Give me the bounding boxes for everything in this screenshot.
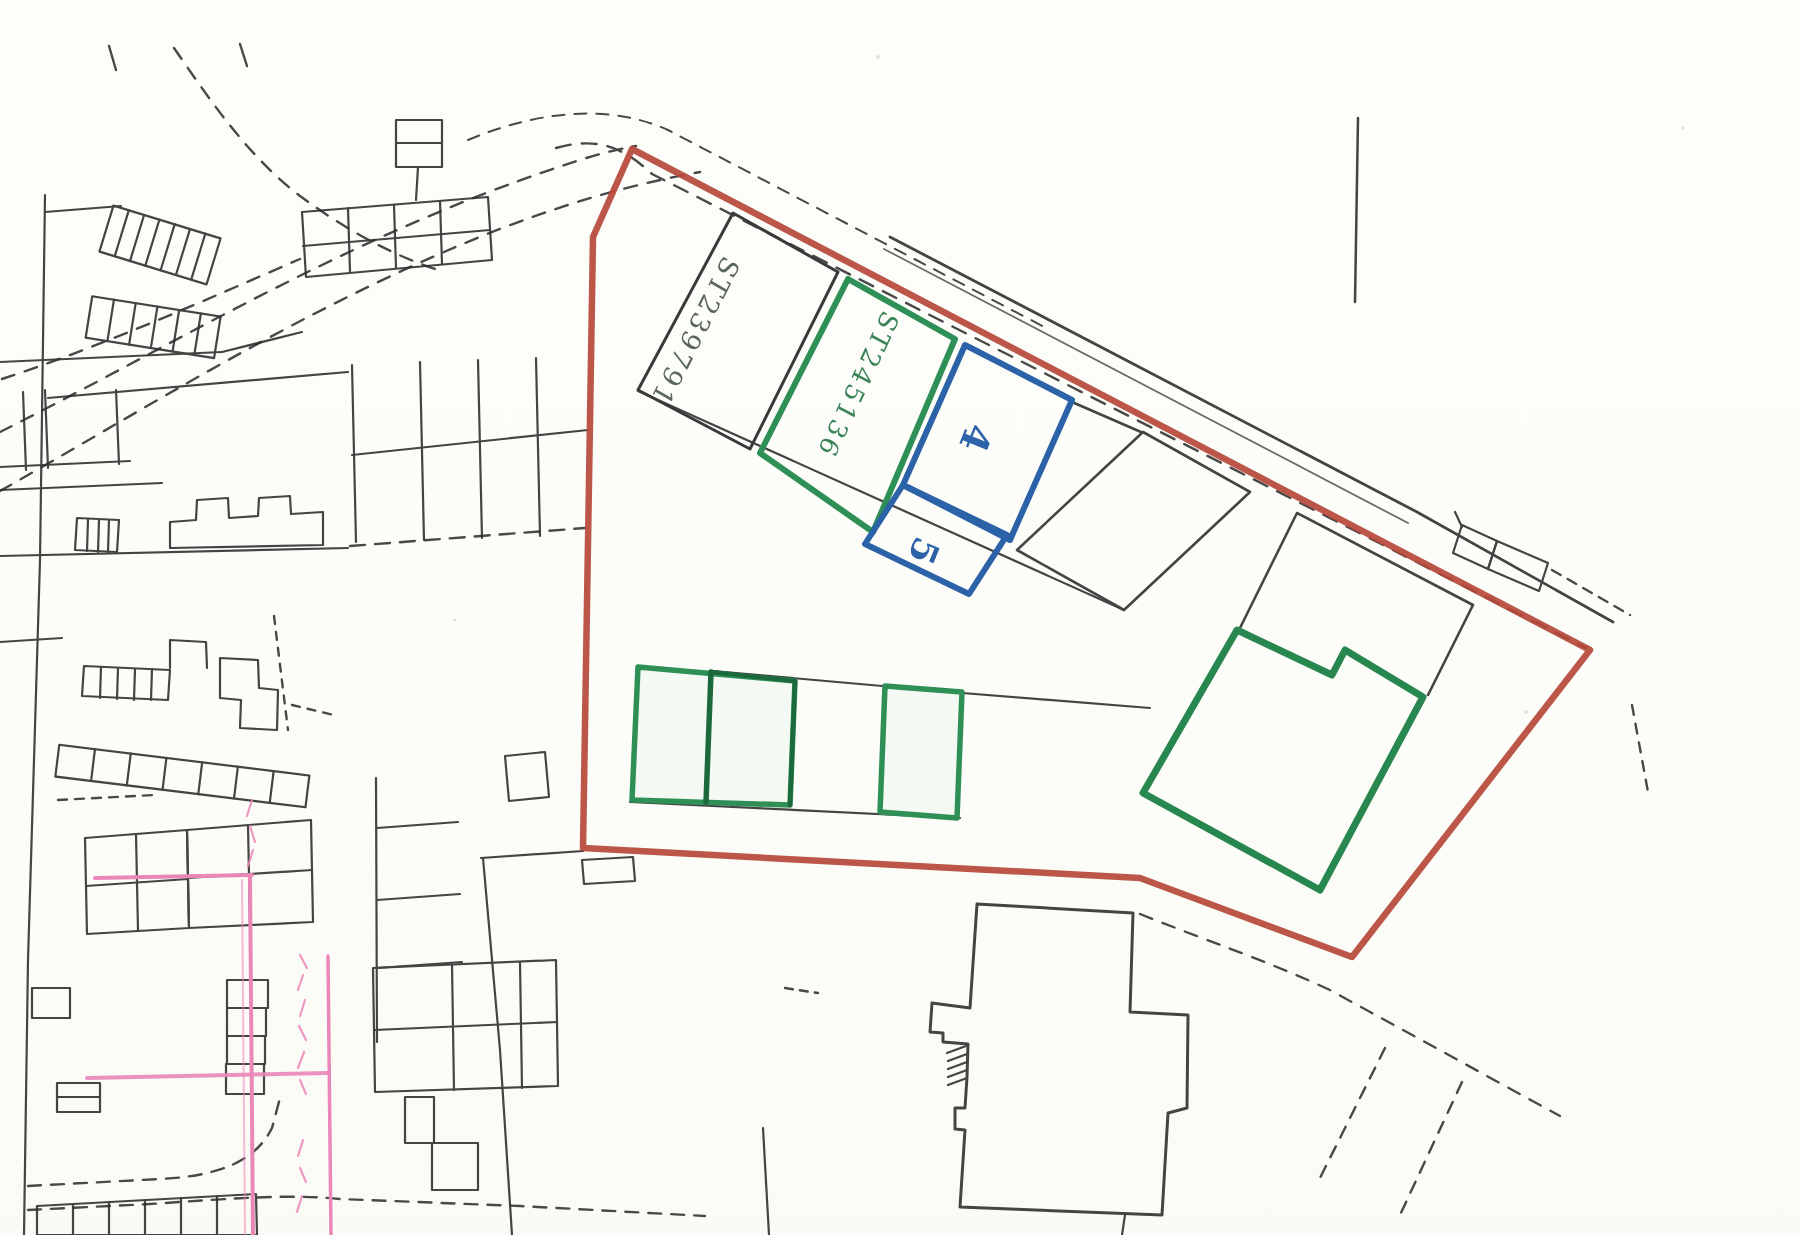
site-plan-page: ST239791 ST245136 4 5: [0, 0, 1800, 1235]
terrace-row-1: [99, 206, 220, 285]
site-plan-map: [0, 0, 1800, 1235]
green-highlight-plots: [632, 279, 1423, 890]
cadastral-linework: [0, 118, 1613, 1235]
green-outbuilding-pair: [632, 667, 795, 805]
plot-st239791-outline: [638, 213, 838, 449]
green-building-l-shape: [1143, 630, 1423, 890]
blue-highlight-plots: [865, 345, 1072, 594]
cadastral-dashed-roads: [0, 44, 1648, 1216]
pink-annotation-lines: [87, 800, 331, 1235]
green-outbuilding-small: [880, 686, 962, 818]
